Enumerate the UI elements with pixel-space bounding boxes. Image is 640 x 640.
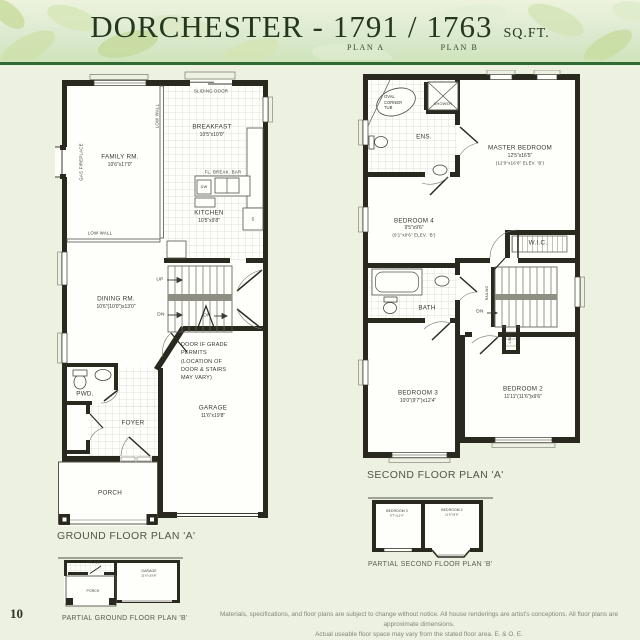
disclaimer-line-2: Actual useable floor space may vary from… bbox=[202, 630, 636, 640]
label-sliding-door: SLIDING DOOR bbox=[194, 89, 228, 94]
model-name: DORCHESTER bbox=[90, 9, 303, 45]
label-grade-note: DOOR IF GRADE PERMITS (LOCATION OF DOOR … bbox=[181, 341, 237, 382]
plan-b-sqft: 1763 bbox=[427, 9, 493, 45]
caption-partial-second-floor: PARTIAL SECOND FLOOR PLAN 'B' bbox=[368, 561, 492, 568]
label-bedroom-2-dim: 11'11"(11'6")x9'6" bbox=[504, 394, 542, 400]
label-dn-1: DN bbox=[157, 313, 164, 318]
label-bedroom-3-dim: 10'0"(9'7")x12'4" bbox=[400, 398, 436, 404]
label-master-bedroom: MASTER BEDROOM bbox=[488, 145, 552, 152]
label-railing: RAILING bbox=[485, 286, 489, 300]
label-low-wall-top: LOW WALL bbox=[155, 104, 160, 129]
label-master-dim2: (12'0"x16'0" ELEV. 'B') bbox=[496, 161, 544, 166]
title-slash: / bbox=[408, 9, 418, 45]
caption-second-floor: SECOND FLOOR PLAN 'A' bbox=[367, 469, 504, 481]
label-dn-second: DN bbox=[476, 310, 483, 315]
plan-a-sqft-group: 1791 PLAN A bbox=[333, 9, 399, 52]
label-kitchen-dim: 10'5"x9'8" bbox=[198, 218, 220, 224]
label-linen: LINEN bbox=[508, 333, 512, 344]
plan-b-label: PLAN B bbox=[441, 43, 479, 52]
label-breakfast: BREAKFAST bbox=[192, 124, 231, 131]
label-master-dim1: 12'5"x16'5" bbox=[508, 153, 533, 159]
ground-floor-plan-drawing bbox=[55, 70, 287, 532]
label-fl-break-bar: FL. BREAK. BAR bbox=[205, 170, 242, 175]
label-pgf-foyer: FOYER bbox=[90, 562, 101, 565]
label-bedroom-4-dim2: (9'1"x9'6" ELEV. 'B') bbox=[392, 233, 435, 238]
label-garage-dim: 11'6"x19'8" bbox=[201, 413, 225, 419]
label-wic: W.I.C. bbox=[529, 240, 548, 247]
label-garage: GARAGE bbox=[199, 405, 227, 412]
label-dw: DW bbox=[201, 185, 208, 189]
label-bath: BATH bbox=[418, 305, 435, 312]
label-sink-s: S bbox=[251, 217, 254, 222]
label-family-rm: FAMILY RM. bbox=[101, 154, 139, 161]
railing-wall bbox=[491, 267, 495, 327]
label-family-rm-dim: 10'6"x17'0" bbox=[108, 162, 133, 168]
label-porch: PORCH bbox=[98, 490, 122, 497]
page-header: DORCHESTER - 1791 PLAN A / 1763 PLAN B S… bbox=[0, 0, 640, 65]
label-kitchen: KITCHEN bbox=[194, 210, 223, 217]
disclaimer-line-1: Materials, specifications, and floor pla… bbox=[202, 610, 636, 630]
label-low-wall-bottom: LOW WALL bbox=[88, 231, 113, 236]
label-shower: SHOWER bbox=[434, 102, 453, 106]
label-bedroom-4-dim1: 9'5"x9'6" bbox=[404, 225, 423, 231]
label-foyer: FOYER bbox=[122, 420, 145, 427]
second-floor-plan-drawing bbox=[358, 70, 595, 470]
label-gas-fireplace: GAS FIREPLACE bbox=[79, 143, 84, 180]
label-breakfast-dim: 10'5"x10'0" bbox=[200, 132, 225, 138]
label-bedroom-3: BEDROOM 3 bbox=[398, 390, 438, 397]
label-psf-bedroom-2: BEDROOM 2 bbox=[441, 508, 463, 512]
label-dn-2: DN bbox=[203, 314, 210, 319]
label-pgf-porch: PORCH bbox=[87, 589, 100, 593]
label-psf-bedroom-3-dim: 9'7"x12'4" bbox=[390, 515, 404, 518]
label-psf-bedroom-2-dim: 11'6"x9'6" bbox=[445, 514, 459, 517]
title-dash: - bbox=[313, 9, 324, 45]
label-psf-bedroom-3: BEDROOM 3 bbox=[386, 509, 408, 513]
plan-a-label: PLAN A bbox=[347, 43, 385, 52]
page-number: 10 bbox=[10, 606, 23, 622]
caption-partial-ground-floor: PARTIAL GROUND FLOOR PLAN 'B' bbox=[62, 615, 188, 622]
label-up: UP bbox=[156, 278, 163, 283]
page-title: DORCHESTER - 1791 PLAN A / 1763 PLAN B S… bbox=[0, 0, 640, 52]
label-oval-corner-tub: OVAL CORNER TUB bbox=[384, 94, 407, 111]
plan-a-sqft: 1791 bbox=[333, 9, 399, 45]
label-bedroom-4: BEDROOM 4 bbox=[394, 218, 434, 225]
label-pwd: PWD. bbox=[76, 391, 93, 398]
label-dining-rm-dim: 10'6"(10'0")x13'0" bbox=[96, 304, 135, 310]
label-dining-rm: DINING RM. bbox=[97, 296, 135, 303]
sqft-unit: SQ.FT. bbox=[504, 26, 550, 42]
partial-second-floor-drawing bbox=[362, 492, 497, 572]
label-pgf-garage: GARAGE bbox=[141, 569, 156, 573]
caption-ground-floor: GROUND FLOOR PLAN 'A' bbox=[57, 530, 195, 542]
brochure-page: DORCHESTER - 1791 PLAN A / 1763 PLAN B S… bbox=[0, 0, 640, 640]
label-ensuite: ENS. bbox=[416, 134, 432, 141]
label-pgf-garage-dim: 11'6"x19'8" bbox=[141, 575, 156, 578]
plan-b-sqft-group: 1763 PLAN B bbox=[427, 9, 493, 52]
label-bedroom-2: BEDROOM 2 bbox=[503, 386, 543, 393]
disclaimer-text: Materials, specifications, and floor pla… bbox=[202, 610, 636, 640]
